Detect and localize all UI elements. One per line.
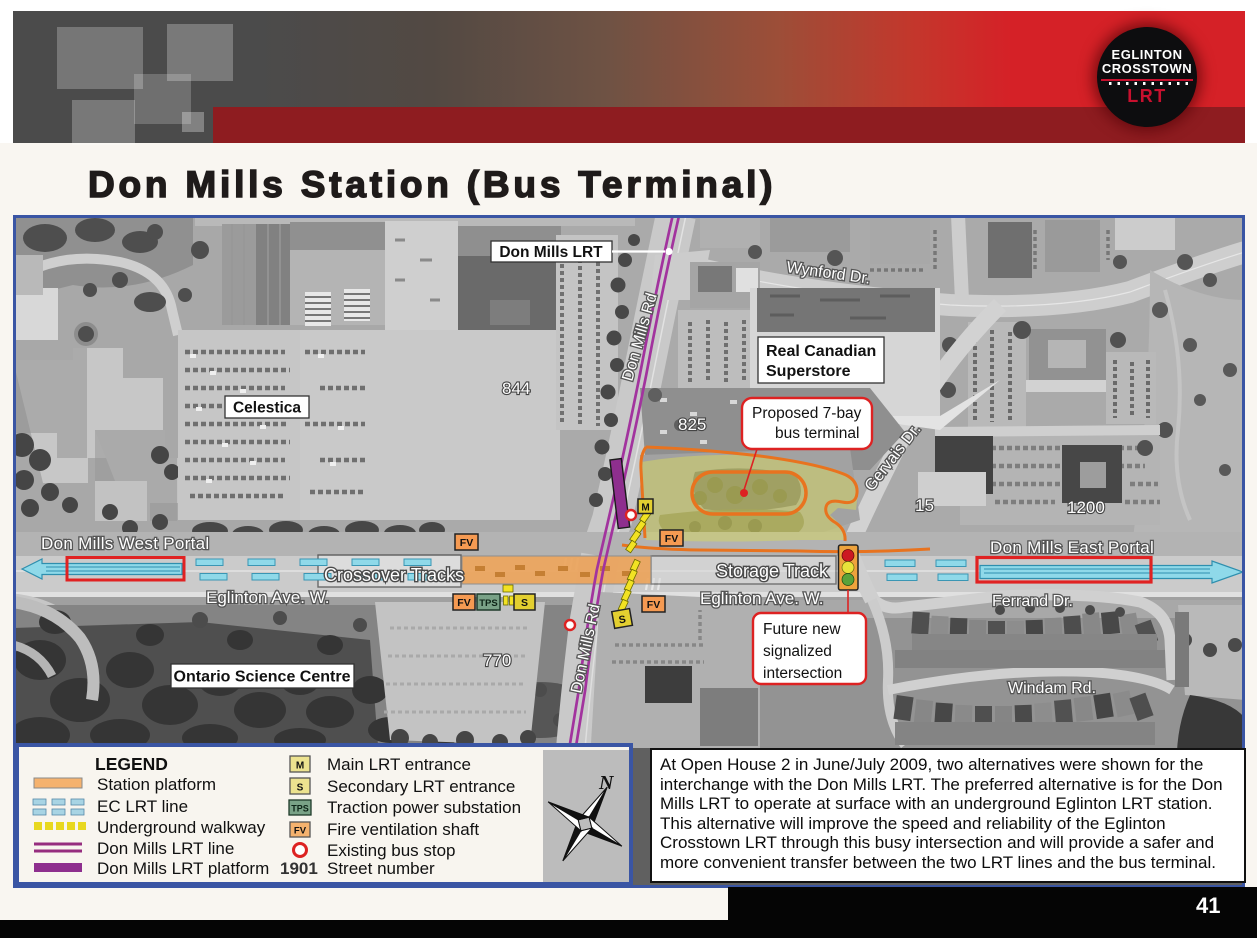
svg-text:Superstore: Superstore xyxy=(766,363,851,380)
svg-text:1200: 1200 xyxy=(1067,498,1105,517)
svg-text:EC LRT line: EC LRT line xyxy=(97,797,188,816)
svg-text:1901: 1901 xyxy=(280,859,318,878)
svg-text:Don Mills West Portal: Don Mills West Portal xyxy=(41,534,209,553)
svg-text:intersection: intersection xyxy=(763,665,842,682)
svg-text:Don Mills LRT platform: Don Mills LRT platform xyxy=(97,859,269,878)
svg-text:Station platform: Station platform xyxy=(97,775,216,794)
svg-text:M: M xyxy=(641,503,649,514)
svg-text:Ferrand Dr.: Ferrand Dr. xyxy=(992,593,1073,610)
svg-text:Crossover Tracks: Crossover Tracks xyxy=(324,565,464,585)
svg-text:Real Canadian: Real Canadian xyxy=(766,343,876,360)
svg-text:15: 15 xyxy=(915,496,934,515)
svg-text:Secondary LRT entrance: Secondary LRT entrance xyxy=(327,777,515,796)
svg-text:Eglinton Ave. W.: Eglinton Ave. W. xyxy=(700,589,823,608)
svg-text:FV: FV xyxy=(665,533,678,545)
svg-text:Main LRT entrance: Main LRT entrance xyxy=(327,755,471,774)
svg-text:Street number: Street number xyxy=(327,859,435,878)
svg-text:Don Mills LRT line: Don Mills LRT line xyxy=(97,839,234,858)
svg-text:Existing bus stop: Existing bus stop xyxy=(327,841,456,860)
svg-text:S: S xyxy=(297,783,304,794)
svg-text:signalized: signalized xyxy=(763,643,832,660)
svg-text:FV: FV xyxy=(457,597,470,609)
svg-text:bus terminal: bus terminal xyxy=(775,425,859,442)
svg-text:Fire ventilation shaft: Fire ventilation shaft xyxy=(327,820,479,839)
svg-text:FV: FV xyxy=(294,826,307,837)
svg-text:TPS: TPS xyxy=(479,598,497,609)
svg-text:Proposed 7-bay: Proposed 7-bay xyxy=(752,405,862,422)
svg-text:Traction power substation: Traction power substation xyxy=(327,798,521,817)
svg-text:S: S xyxy=(521,597,528,609)
svg-text:825: 825 xyxy=(678,415,706,434)
svg-text:Don Mills East Portal: Don Mills East Portal xyxy=(990,538,1154,557)
svg-text:Ontario Science Centre: Ontario Science Centre xyxy=(174,669,351,686)
svg-text:Celestica: Celestica xyxy=(233,400,301,417)
svg-text:FV: FV xyxy=(647,599,660,611)
svg-text:Don Mills LRT: Don Mills LRT xyxy=(499,244,603,261)
svg-text:N: N xyxy=(598,772,615,794)
svg-text:Underground walkway: Underground walkway xyxy=(97,818,266,837)
svg-text:LEGEND: LEGEND xyxy=(95,754,168,774)
svg-text:TPS: TPS xyxy=(291,804,309,814)
svg-text:844: 844 xyxy=(502,379,530,398)
svg-text:Storage Track: Storage Track xyxy=(716,561,829,581)
svg-text:Eglinton Ave. W.: Eglinton Ave. W. xyxy=(206,588,329,607)
svg-text:Future new: Future new xyxy=(763,621,841,638)
svg-text:FV: FV xyxy=(460,537,473,549)
svg-text:Windam Rd.: Windam Rd. xyxy=(1008,680,1096,697)
svg-text:770: 770 xyxy=(483,651,511,670)
svg-text:M: M xyxy=(296,761,304,772)
